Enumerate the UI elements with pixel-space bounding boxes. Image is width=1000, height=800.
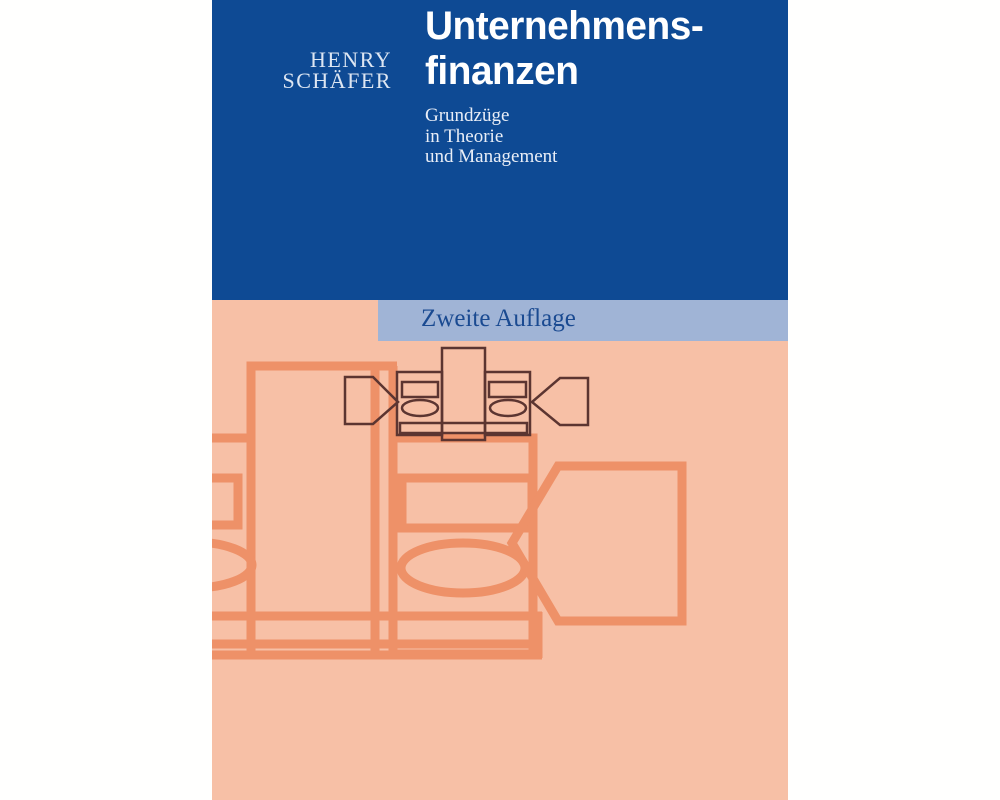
machines-illustration <box>212 300 788 800</box>
book-title-line1: Unternehmens- <box>425 4 703 49</box>
page-background: HENRY SCHÄFER Unternehmens- finanzen Gru… <box>0 0 1000 800</box>
edition-label: Zweite Auflage <box>378 300 788 338</box>
cover-top-panel: HENRY SCHÄFER Unternehmens- finanzen Gru… <box>212 0 788 300</box>
author-first-name: HENRY <box>282 49 392 70</box>
book-title-line2: finanzen <box>425 49 703 94</box>
author-last-name: SCHÄFER <box>282 70 392 91</box>
book-cover: HENRY SCHÄFER Unternehmens- finanzen Gru… <box>212 0 788 800</box>
book-subtitle-line3: und Management <box>425 147 557 168</box>
author-name: HENRY SCHÄFER <box>282 49 392 91</box>
book-subtitle-line2: in Theorie <box>425 127 557 148</box>
book-subtitle: Grundzüge in Theorie und Management <box>425 106 557 168</box>
book-title: Unternehmens- finanzen <box>425 4 703 94</box>
large-machine-drawing <box>212 366 682 658</box>
cover-bottom-panel: Physica-Verlag Ein Unternehmen des Sprin… <box>212 300 788 800</box>
book-subtitle-line1: Grundzüge <box>425 106 557 127</box>
edition-band: Zweite Auflage <box>378 300 788 341</box>
